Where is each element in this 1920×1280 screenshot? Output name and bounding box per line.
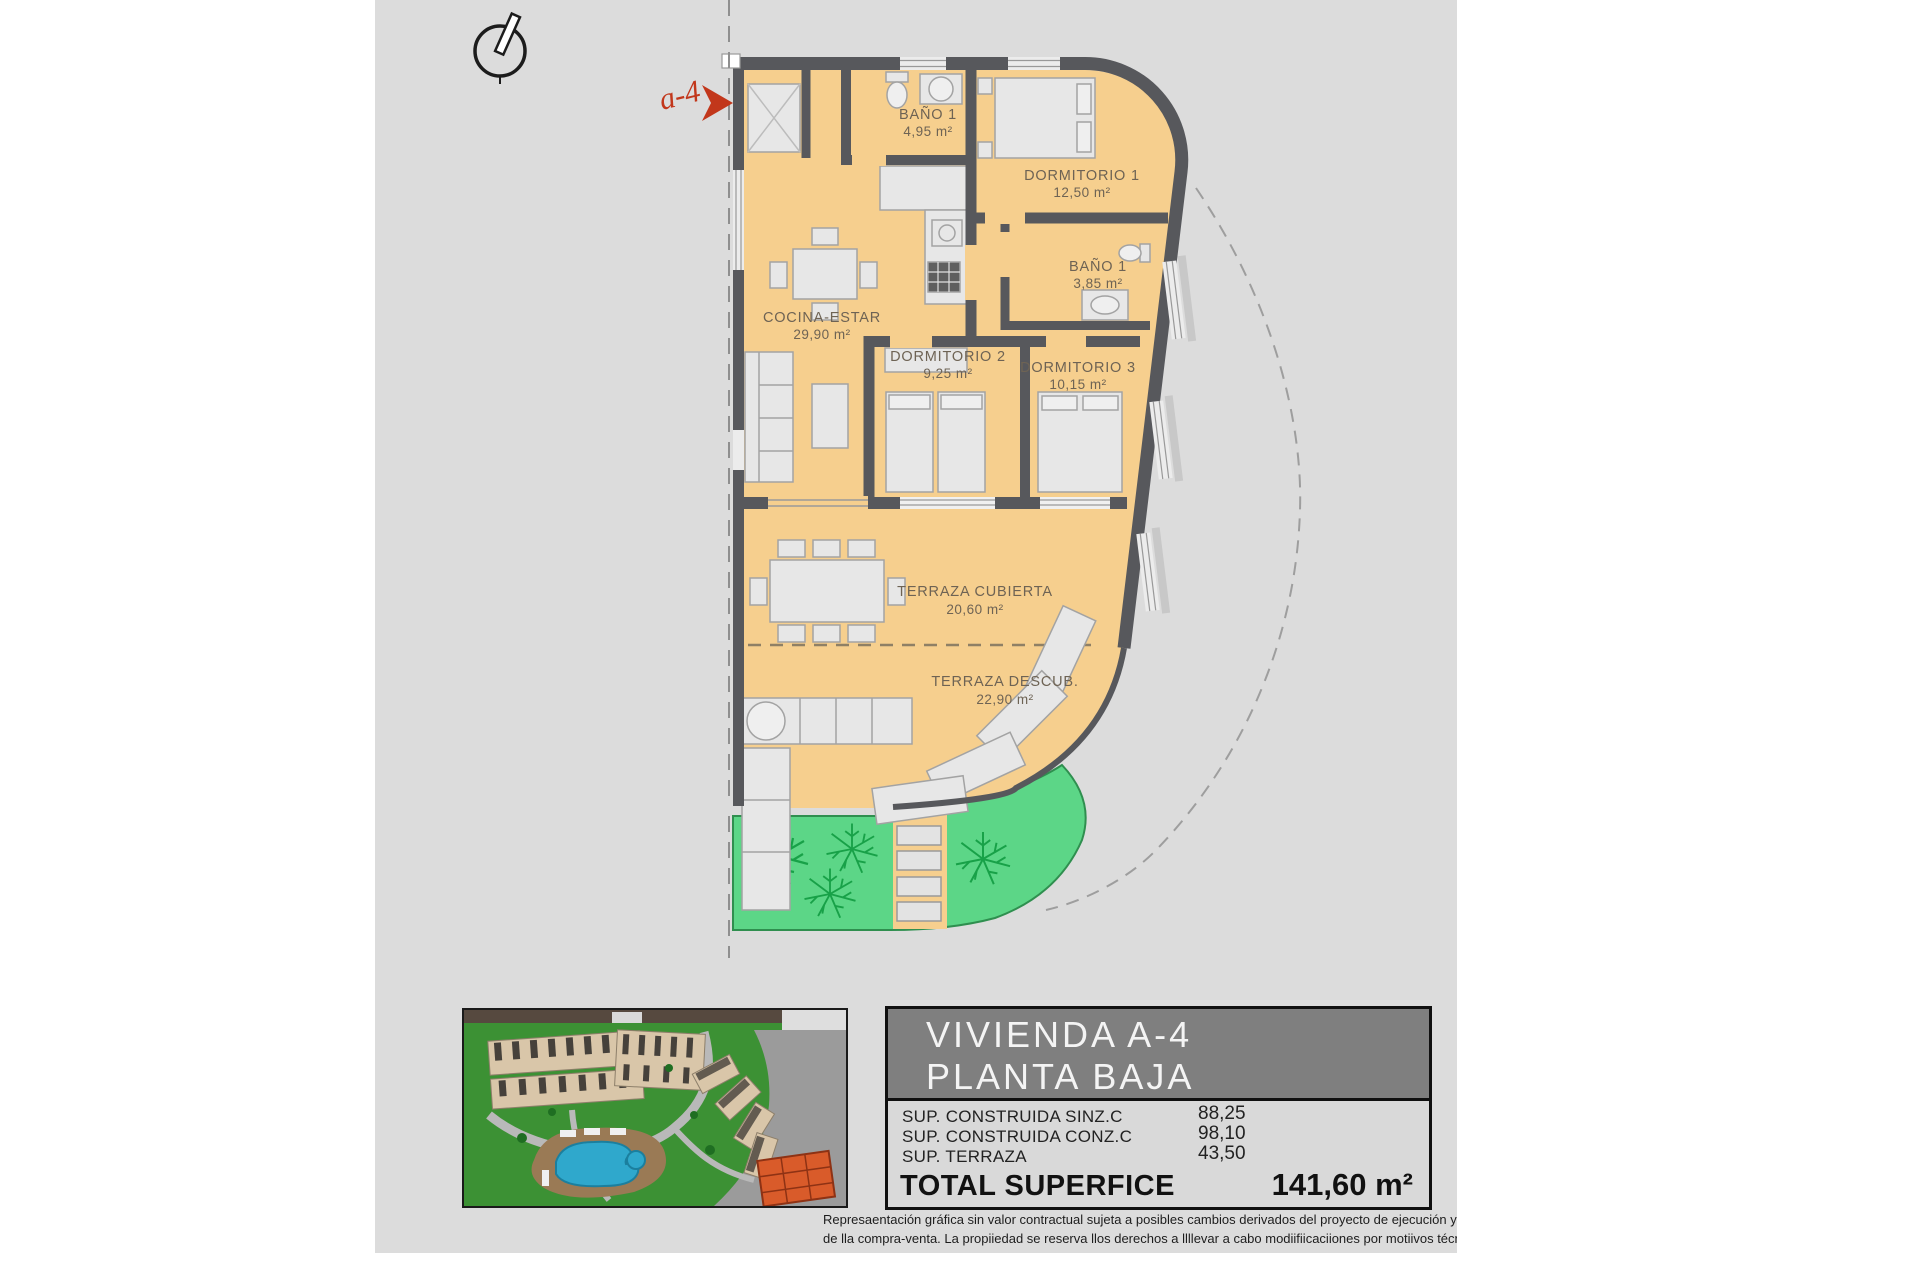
title-block-body: SUP. CONSTRUIDA SINZ.C 88,25 SUP. CONSTR… [888,1101,1429,1207]
room-label-cocina-estar: COCINA-ESTAR [763,310,881,326]
room-label-dormitorio1: DORMITORIO 1 [1024,168,1140,184]
sup-construida-sinzc-label: SUP. CONSTRUIDA SINZ.C [902,1107,1123,1127]
highlighted-unit [757,1151,835,1206]
room-label-terraza-descubierta: TERRAZA DESCUB. [931,674,1078,690]
title-block-header: VIVIENDA A-4 PLANTA BAJA [888,1009,1429,1101]
north-compass-icon [475,14,525,84]
room-label-terraza-cubierta: TERRAZA CUBIERTA [897,584,1053,600]
sup-construida-conzc-value: 98,10 [1198,1123,1246,1145]
sup-construida-conzc-label: SUP. CONSTRUIDA CONZ.C [902,1127,1132,1147]
room-label-bano1: BAÑO 1 [899,106,957,123]
sofa [745,352,793,482]
room-area-terraza-cubierta: 20,60 m² [946,602,1003,617]
toilet-icon [886,72,908,82]
hob [928,262,960,292]
title-block: VIVIENDA A-4 PLANTA BAJA SUP. CONSTRUIDA… [885,1006,1432,1210]
total-superfice-value: 141,60 m² [1272,1167,1413,1203]
sup-terraza-value: 43,50 [1198,1143,1246,1165]
room-label-bano2: BAÑO 1 [1069,258,1127,275]
room-area-bano1: 4,95 m² [903,124,952,139]
kitchen-counter [880,166,971,210]
total-superfice-label: TOTAL SUPERFICE [900,1170,1175,1203]
room-area-terraza-descubierta: 22,90 m² [976,692,1033,707]
dining-table [793,249,857,299]
sink-icon [929,77,953,101]
unit-marker: a-4 [655,73,733,121]
room-label-dormitorio3: DORMITORIO 3 [1020,360,1136,376]
room-area-cocina-estar: 29,90 m² [793,327,850,342]
round-table [747,702,785,740]
site-plan-graphic [464,1010,846,1206]
terrace-table [770,560,884,622]
garden-path [893,808,947,929]
room-label-dormitorio2: DORMITORIO 2 [890,349,1006,365]
coffee-table [812,384,848,448]
sup-construida-sinzc-value: 88,25 [1198,1103,1246,1125]
screenshot-root: { "plan": { "unit_label": "a-4", "rooms"… [0,0,1920,1280]
title-line-2: PLANTA BAJA [926,1056,1429,1098]
title-line-1: VIVIENDA A-4 [926,1014,1429,1056]
unit-marker-label: a-4 [655,73,704,117]
sup-terraza-label: SUP. TERRAZA [902,1147,1027,1167]
building-row [615,1030,706,1091]
room-area-dormitorio1: 12,50 m² [1053,185,1110,200]
room-area-dormitorio2: 9,25 m² [923,366,972,381]
site-plan-photo [462,1008,848,1208]
room-area-dormitorio3: 10,15 m² [1049,377,1106,392]
room-area-bano2: 3,85 m² [1073,276,1122,291]
